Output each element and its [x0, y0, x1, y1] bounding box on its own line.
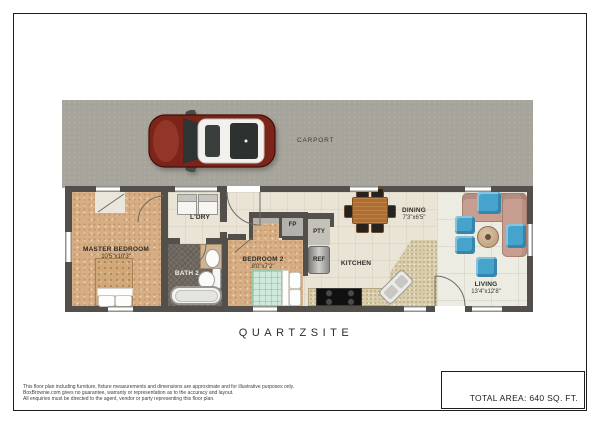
- bed2-blanket: [252, 270, 282, 306]
- wall: [222, 244, 228, 306]
- dining-chair: [371, 223, 384, 233]
- window: [175, 186, 217, 192]
- table-decor: [485, 234, 491, 240]
- bed2-pillow: [289, 289, 301, 306]
- wall: [279, 212, 282, 238]
- master-bed: [95, 258, 133, 306]
- wall: [228, 234, 246, 240]
- window: [253, 306, 277, 312]
- master-closet: [95, 192, 125, 213]
- dining-chair: [356, 223, 369, 233]
- room-dims-living: 13'4"x12'8": [471, 289, 501, 295]
- pantry: PTY: [308, 219, 330, 245]
- room-label-living: LIVING: [475, 281, 498, 288]
- room-label-dining: DINING: [402, 207, 426, 214]
- room-label-bath2: BATH 2: [175, 270, 199, 277]
- sink-basin: [394, 274, 409, 289]
- sofa-pillow-blue: [506, 224, 526, 248]
- total-area-text: TOTAL AREA: 640 SQ. FT.: [470, 393, 578, 403]
- room-label-master: MASTER BEDROOM: [83, 246, 149, 253]
- armchair-blue: [477, 192, 501, 214]
- room-dims-master: 10'5"x10'3": [101, 254, 131, 260]
- bath-vanity: [200, 244, 222, 269]
- wall: [161, 192, 168, 196]
- window: [108, 306, 133, 312]
- window: [465, 186, 491, 192]
- dryer: [198, 194, 218, 215]
- wall: [220, 192, 227, 222]
- wall: [161, 238, 180, 244]
- bed2-sheet: [282, 270, 289, 306]
- wall: [161, 222, 168, 306]
- refrigerator: REF: [308, 246, 330, 274]
- floorplan-page: CARPORT FP PTY: [0, 0, 600, 424]
- ref-label: REF: [313, 257, 325, 263]
- room-dims-dining: 7'3"x6'5": [403, 215, 426, 221]
- living-door-opening: [435, 306, 465, 312]
- disclaimer-text: This floor plan including furniture, fix…: [23, 384, 294, 402]
- dining-chair: [387, 205, 396, 218]
- wall: [282, 236, 303, 240]
- room-label-bedroom2: BEDROOM 2: [242, 256, 283, 263]
- stove: [316, 288, 362, 306]
- dining-table: [352, 197, 388, 224]
- bathtub: [170, 286, 222, 305]
- room-label-laundry: L'DRY: [190, 214, 210, 221]
- bath-sink: [205, 249, 220, 268]
- entry-door-opening: [227, 186, 260, 192]
- disclaimer-line3: All enquiries must be directed to the ag…: [23, 396, 294, 402]
- pty-label: PTY: [313, 229, 325, 235]
- window: [65, 232, 72, 262]
- car-top-view-icon: [146, 110, 278, 172]
- carport-area: CARPORT: [62, 100, 533, 188]
- ottoman-blue: [455, 236, 475, 254]
- total-area-box: TOTAL AREA: 640 SQ. FT.: [441, 371, 585, 409]
- plan-title: QUARTZSITE: [239, 327, 353, 339]
- fp-label: FP: [289, 222, 297, 228]
- wall: [330, 219, 334, 227]
- carport-label: CARPORT: [297, 137, 334, 144]
- coffee-table: [477, 226, 499, 248]
- ottoman-blue: [455, 216, 475, 234]
- room-dims-bedroom2: 8'0"x7'2": [252, 264, 275, 270]
- bathtub-basin: [175, 290, 218, 302]
- window: [404, 306, 426, 312]
- window: [527, 224, 533, 256]
- window: [96, 186, 120, 192]
- window: [350, 186, 378, 192]
- bed2-pillow: [289, 272, 301, 289]
- washer: [177, 194, 197, 215]
- sink-basin: [383, 284, 399, 300]
- house: FP PTY: [65, 186, 533, 312]
- room-label-kitchen: KITCHEN: [341, 260, 371, 267]
- ottoman-blue: [476, 257, 497, 277]
- window: [472, 306, 502, 312]
- closet-shelf: [253, 218, 279, 223]
